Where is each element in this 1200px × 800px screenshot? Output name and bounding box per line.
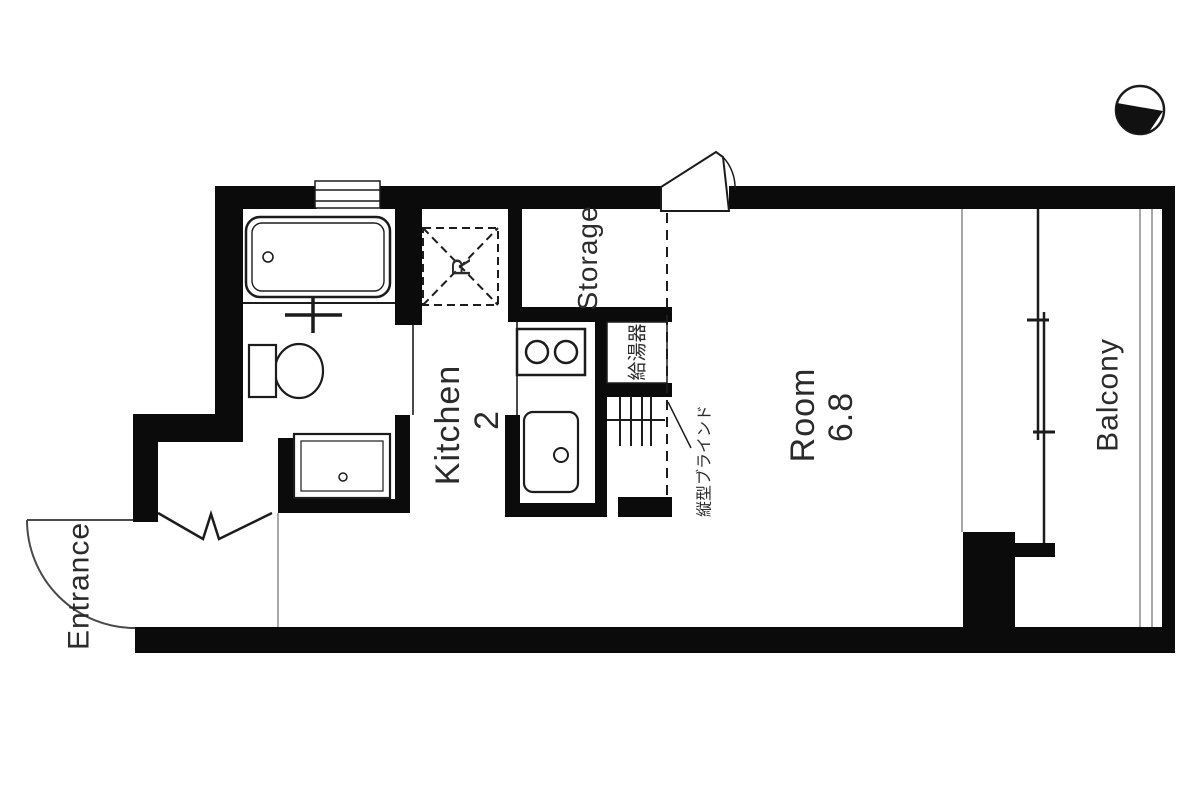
sink-drain-icon: [554, 448, 568, 462]
wall-left-upper: [215, 186, 243, 442]
bifold-closet-door-icon: [158, 513, 272, 539]
stove-burner-icon: [526, 341, 548, 363]
entrance-label: Entrance: [63, 522, 96, 650]
wall-storage-left: [508, 209, 522, 322]
refrigerator-label: R: [446, 258, 476, 277]
floor-plan-drawing: Entrance Kitchen 2 Storage R 給湯器 縦型ブラインド…: [0, 0, 1200, 800]
washbasin-drain-icon: [339, 473, 347, 481]
storage-label: Storage: [572, 205, 603, 310]
bathtub-drain-icon: [263, 252, 273, 262]
vertical-blind-leader-line: [668, 402, 691, 448]
balcony-label: Balcony: [1092, 338, 1125, 452]
wall-vanity-right: [395, 415, 410, 513]
wall-corner-stub: [1015, 543, 1055, 557]
north-arrow-icon: [1116, 86, 1164, 134]
wall-kitchen-bottom: [505, 503, 607, 517]
bath-window-icon: [315, 181, 380, 208]
sliding-window-icon: [1027, 209, 1055, 543]
floor-plan-page: Entrance Kitchen 2 Storage R 給湯器 縦型ブラインド…: [0, 0, 1200, 800]
toilet-bowl-icon: [275, 344, 323, 398]
awning-window-icon: [661, 152, 729, 211]
bathroom: [243, 217, 395, 498]
washbasin-inner: [301, 441, 383, 491]
wall-room-corner-column: [963, 532, 1015, 627]
wall-blind-stub: [618, 497, 672, 517]
kitchen-sink-icon: [524, 412, 578, 492]
wall-top-3: [729, 186, 1175, 209]
room-label: Room: [784, 368, 822, 463]
toilet-tank-icon: [249, 345, 276, 397]
water-heater-label: 給湯器: [627, 323, 649, 380]
stove-burner-icon: [555, 341, 577, 363]
wall-bath-right: [395, 186, 422, 325]
kitchen-label: Kitchen: [429, 365, 467, 485]
wall-sink-side: [505, 415, 520, 517]
kitchen-size-label: 2: [468, 410, 506, 430]
room-size-label: 6.8: [822, 392, 860, 442]
wall-left-lower: [133, 414, 158, 522]
windows: [315, 152, 1055, 543]
vertical-blind-label: 縦型ブラインド: [695, 405, 714, 517]
wall-heater-bottom: [595, 383, 672, 397]
wall-top-2: [380, 186, 661, 209]
wall-kitchen-right: [595, 322, 607, 505]
wall-vanity-bottom: [278, 499, 410, 513]
wall-bottom: [135, 627, 1175, 653]
wall-balcony-right-edge: [1162, 208, 1175, 627]
shelf-lines-icon: [607, 396, 665, 446]
